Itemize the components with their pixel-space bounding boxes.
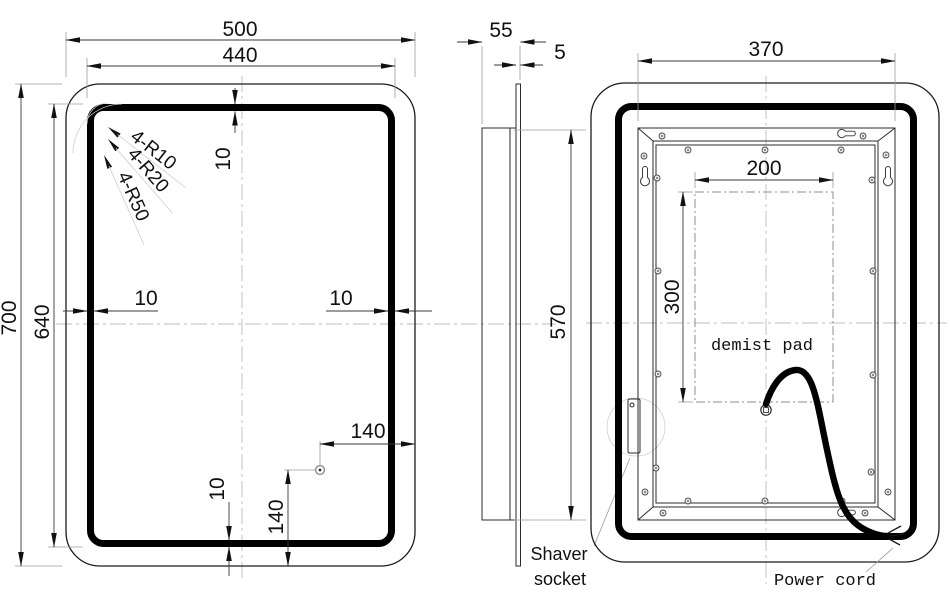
dim-500-text: 500: [222, 18, 257, 41]
dim-band-left-10: 10: [63, 287, 158, 311]
demist-pad: demist pad: [695, 192, 833, 402]
screw-icon: [685, 498, 691, 504]
screw-icon: [838, 147, 844, 153]
dim-band-top-text: 10: [212, 147, 235, 170]
dim-440-text: 440: [222, 44, 257, 67]
dim-200-text: 200: [746, 157, 781, 180]
screw-icon: [685, 147, 691, 153]
back-box-frame: [638, 128, 895, 520]
dim-300-text: 300: [661, 279, 684, 314]
dim-140h-text: 140: [350, 420, 385, 443]
dim-55-text: 55: [489, 19, 512, 42]
screw-icon: [660, 510, 666, 516]
dim-glass-5: 5: [494, 41, 566, 65]
dim-box-height-570: 570: [514, 130, 586, 520]
dim-band-bottom-10: 10: [206, 477, 229, 576]
dim-band-bottom-text: 10: [206, 477, 229, 500]
dim-band-right-text: 10: [329, 287, 352, 310]
keyhole-icon: [641, 167, 650, 186]
shaver-label-line1: Shaver: [530, 544, 587, 564]
dim-depth-55: 55: [457, 19, 546, 124]
screw-icon: [762, 498, 768, 504]
demist-pad-text: demist pad: [711, 337, 813, 356]
dim-140v-text: 140: [265, 499, 288, 534]
front-led-band: [91, 108, 392, 544]
power-cord-text: Power cord: [774, 572, 876, 591]
touch-sensor-icon: [316, 466, 325, 475]
back-view: 370 demist pad 200 300: [586, 38, 947, 591]
screw-icon: [642, 489, 648, 495]
screw-icon: [659, 133, 665, 139]
mirror-technical-drawing: 500 440 700 640 10: [0, 0, 950, 609]
screw-icon: [869, 177, 875, 183]
dim-band-top-10: 10: [212, 88, 235, 171]
power-cord-leader: [866, 548, 893, 572]
dim-inner-width-440: 440: [87, 44, 395, 98]
screw-icon: [655, 371, 661, 377]
screw-icon: [860, 133, 866, 139]
screw-icon: [654, 175, 660, 181]
screw-icon: [655, 268, 661, 274]
front-view: 500 440 700 640 10: [0, 18, 556, 582]
power-cord: Power cord: [761, 370, 904, 591]
side-mirror-glass: [516, 84, 521, 566]
screw-icon: [868, 469, 874, 475]
keyhole-icon: [838, 129, 856, 137]
screw-icon: [885, 489, 891, 495]
keyhole-icon: [884, 167, 893, 186]
screw-icon: [653, 465, 659, 471]
screw-icon: [883, 152, 889, 158]
drawing-canvas: 500 440 700 640 10: [0, 0, 950, 609]
screw-icon: [862, 510, 868, 516]
demist-pad-outline: [695, 192, 833, 402]
shaver-label-line2: socket: [534, 569, 586, 589]
screw-icon: [762, 147, 768, 153]
dim-sensor-140-vertical: 140: [265, 470, 316, 566]
dim-640-text: 640: [31, 304, 54, 339]
dim-pad-width-200: 200: [695, 157, 833, 188]
dim-band-right-10: 10: [326, 287, 432, 311]
dim-5-text: 5: [554, 41, 566, 64]
dim-570-text: 570: [547, 304, 570, 339]
dim-370-text: 370: [748, 38, 783, 61]
screw-icon: [870, 268, 876, 274]
dim-band-left-text: 10: [134, 287, 157, 310]
dim-inner-height-640: 640: [31, 104, 83, 547]
dim-700-text: 700: [0, 300, 21, 335]
dim-sensor-140-horizontal: 140: [320, 420, 415, 466]
screw-icon: [870, 372, 876, 378]
front-mirror-outline: [66, 84, 415, 566]
screw-icon: [641, 153, 647, 159]
dim-pad-height-300: 300: [661, 192, 693, 402]
side-view: 55 5 570 Shaver socket: [457, 19, 630, 589]
